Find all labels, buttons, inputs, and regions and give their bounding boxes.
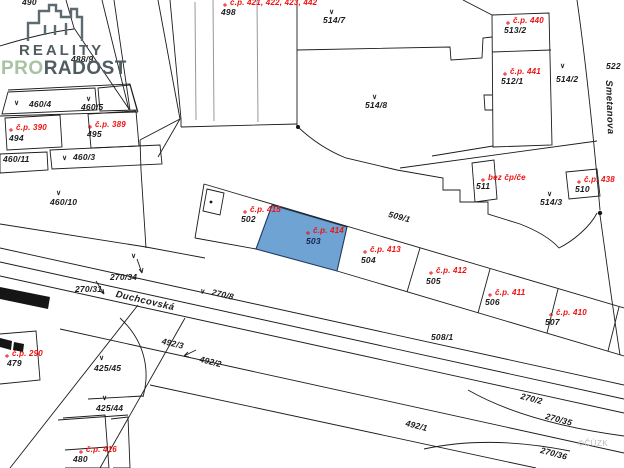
- logo-text-proradost: PRORADOST: [1, 58, 127, 80]
- house-number-label: č.p. 440: [513, 16, 544, 25]
- house-number-label: č.p. 390: [16, 123, 47, 132]
- parcel-number-label: 270/2: [520, 391, 544, 406]
- parcel-number-label: 495: [87, 129, 102, 139]
- parcel-number-label: 504: [361, 255, 376, 265]
- parcel-number-label: 508/1: [431, 332, 453, 342]
- parcel-number-label: 270/34: [110, 272, 137, 282]
- parcel-number-label: 270/31: [75, 284, 102, 294]
- logo-text-pro: PRO: [1, 58, 44, 79]
- house-number-label: č.p. 389: [95, 120, 126, 129]
- parcel-number-label: 270/36: [539, 445, 568, 462]
- parcel-number-label: 514/7: [323, 15, 345, 25]
- house-number-label: č.p. 441: [510, 67, 541, 76]
- parcel-number-label: 460/4: [29, 99, 51, 109]
- parcel-number-label: 460/3: [73, 152, 95, 162]
- land-use-symbol: ∨: [86, 95, 91, 103]
- parcel-number-label: 513/2: [504, 25, 526, 35]
- parcel-number-label: 503: [306, 236, 321, 246]
- parcel-number-label: 460/11: [3, 154, 30, 164]
- land-use-symbol: ∨: [560, 62, 565, 70]
- land-use-symbol: ∨: [99, 354, 104, 362]
- parcel-number-label: 492/3: [161, 336, 185, 351]
- land-use-symbol: ∨: [372, 93, 377, 101]
- parcel-number-label: 514/2: [556, 74, 578, 84]
- parcel-number-label: 494: [9, 133, 24, 143]
- parcel-number-label: 492/2: [199, 354, 223, 369]
- logo-text-reality: REALITY: [19, 42, 104, 59]
- parcel-number-label: 425/44: [96, 403, 123, 413]
- watermark: ©ČÚZK: [578, 439, 608, 448]
- land-use-symbol: ∨: [329, 8, 334, 16]
- land-use-symbol: ∨: [131, 252, 136, 260]
- cadastral-map-screenshot: 490488/9498č.p. 421, 422, 423, 442514/7č…: [0, 0, 624, 468]
- parcel-number-label: 512/1: [501, 76, 523, 86]
- land-use-symbol: ∨: [547, 190, 552, 198]
- parcel-number-label: 498: [221, 7, 236, 17]
- parcel-number-label: 506: [485, 297, 500, 307]
- parcel-number-label: 522: [606, 61, 621, 71]
- reality-proradost-logo: REALITY PRORADOST: [0, 0, 132, 92]
- land-use-symbol: ∨: [102, 394, 107, 402]
- house-number-label: č.p. 415: [250, 205, 281, 214]
- house-logo-icon: [25, 1, 85, 43]
- parcel-number-label: 270/35: [544, 411, 573, 428]
- parcel-number-label: 502: [241, 214, 256, 224]
- house-number-label: č.p. 412: [436, 266, 467, 275]
- parcel-number-label: 479: [7, 358, 22, 368]
- parcel-number-label: 509/1: [387, 209, 411, 224]
- parcel-number-label: 514/3: [540, 197, 562, 207]
- house-number-label: č.p. 410: [556, 308, 587, 317]
- parcel-number-label: 505: [426, 276, 441, 286]
- parcel-number-label: 460/10: [50, 197, 77, 207]
- parcel-number-label: 492/1: [405, 418, 429, 433]
- house-number-label: č.p. 414: [313, 226, 344, 235]
- parcel-number-label: 510: [575, 184, 590, 194]
- parcel-number-label: 425/45: [94, 363, 121, 373]
- parcel-number-label: 270/8: [211, 287, 235, 302]
- street-name-label: Smetanova: [603, 80, 616, 135]
- parcel-number-label: 460/5: [81, 102, 103, 112]
- house-number-label: bez čp/če: [488, 173, 526, 182]
- house-number-label: č.p. 290: [12, 349, 43, 358]
- land-use-symbol: ∨: [199, 287, 206, 296]
- house-number-label: č.p. 411: [495, 288, 525, 297]
- logo-text-radost: RADOST: [44, 58, 127, 79]
- land-use-symbol: ∨: [62, 154, 67, 162]
- parcel-number-label: 514/8: [365, 100, 387, 110]
- house-number-label: č.p. 421, 422, 423, 442: [230, 0, 317, 7]
- land-use-symbol: ∨: [56, 189, 61, 197]
- house-number-label: č.p. 438: [584, 175, 615, 184]
- land-use-symbol: ∨: [14, 99, 19, 107]
- parcel-number-label: 507: [545, 317, 560, 327]
- parcel-number-label: 480: [73, 454, 88, 464]
- parcel-number-label: 511: [476, 181, 490, 191]
- house-number-label: č.p. 413: [370, 245, 401, 254]
- street-name-label: Duchcovská: [115, 289, 176, 313]
- house-number-label: č.p. 416: [86, 445, 117, 454]
